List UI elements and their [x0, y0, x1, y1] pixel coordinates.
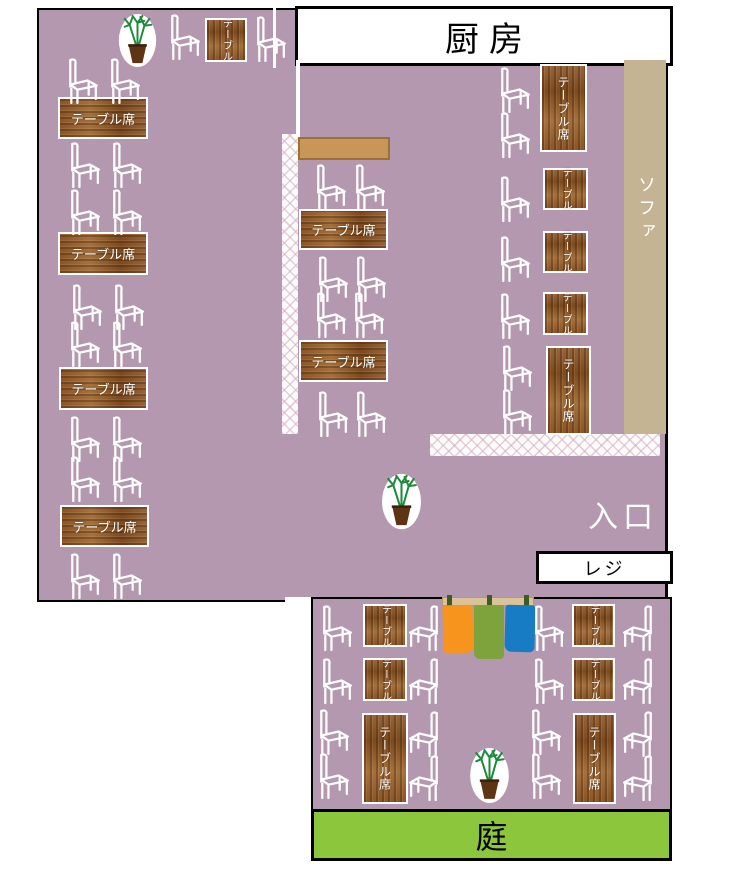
sofa-bench — [624, 60, 666, 434]
table-small: テーブル — [205, 18, 247, 62]
potted-plant-icon — [469, 747, 510, 804]
table-label: テーブル — [219, 18, 234, 62]
chair-icon — [525, 708, 562, 755]
chair-icon — [622, 710, 659, 757]
table-label: テーブル席 — [560, 358, 577, 423]
table-label: テーブル — [558, 167, 573, 211]
table-label: テーブル — [558, 230, 573, 274]
table-small: テーブル — [543, 168, 588, 210]
chair-icon — [622, 754, 659, 801]
kitchen-label: 厨房 — [435, 12, 533, 61]
lattice-partition-vertical — [282, 134, 298, 434]
table-seat: テーブル席 — [546, 346, 591, 435]
table-small: テーブル — [363, 604, 407, 647]
table-seat: テーブル席 — [540, 64, 587, 152]
chair-icon — [106, 552, 143, 599]
table-seat: テーブル席 — [60, 505, 149, 547]
chair-icon — [64, 141, 101, 188]
chair-icon — [106, 320, 143, 367]
chair-icon — [496, 344, 533, 391]
noren-curtain-green — [474, 605, 504, 659]
wall-divider-mid — [296, 60, 300, 138]
chair-icon — [622, 657, 659, 704]
table-label: テーブル席 — [71, 109, 135, 128]
garden-label: 庭 — [475, 812, 507, 858]
register-box: レジ — [536, 551, 673, 584]
table-label: テーブル席 — [377, 726, 394, 791]
register-label: レジ — [584, 555, 626, 581]
potted-plant-icon — [381, 471, 422, 532]
chair-icon — [528, 604, 565, 651]
table-small: テーブル — [363, 658, 407, 701]
chair-icon — [106, 455, 143, 502]
chair-icon — [494, 235, 531, 282]
chair-icon — [408, 754, 445, 801]
chair-icon — [350, 390, 387, 437]
table-seat: テーブル席 — [362, 713, 408, 804]
table-label: テーブル — [558, 292, 573, 336]
chair-icon — [106, 141, 143, 188]
chair-icon — [349, 163, 386, 210]
sofa-label: ソファ — [633, 175, 659, 244]
table-label: テーブル — [586, 604, 601, 648]
table-label: テーブル席 — [311, 220, 375, 239]
chair-icon — [164, 13, 201, 60]
chair-icon — [312, 390, 349, 437]
chair-icon — [64, 320, 101, 367]
chair-icon — [494, 292, 531, 339]
chair-icon — [494, 66, 531, 113]
chair-icon — [62, 57, 99, 104]
chair-icon — [494, 111, 531, 158]
table-small: テーブル — [543, 292, 588, 335]
table-seat: テーブル席 — [299, 340, 388, 382]
table-seat: テーブル席 — [299, 209, 388, 250]
chair-icon — [106, 188, 143, 235]
chair-icon — [310, 291, 347, 338]
chair-icon — [408, 604, 445, 651]
chair-icon — [313, 752, 350, 799]
table-label: テーブル席 — [72, 517, 136, 536]
table-label: テーブル — [378, 658, 393, 702]
chair-icon — [313, 708, 350, 755]
chair-icon — [64, 455, 101, 502]
chair-icon — [316, 657, 353, 704]
chair-icon — [316, 604, 353, 651]
table-label: テーブル席 — [71, 379, 135, 398]
table-seat: テーブル席 — [59, 367, 148, 410]
chair-icon — [310, 163, 347, 210]
table-small: テーブル — [572, 604, 615, 647]
entrance-label: 入口 — [588, 492, 658, 536]
chair-icon — [348, 291, 385, 338]
chair-icon — [494, 175, 531, 222]
chair-icon — [622, 604, 659, 651]
chair-icon — [250, 15, 287, 62]
table-label: テーブル — [378, 604, 393, 648]
table-label: テーブル席 — [311, 352, 375, 371]
kitchen-area: 厨房 — [295, 6, 673, 66]
chair-icon — [528, 657, 565, 704]
table-seat: テーブル席 — [58, 232, 148, 275]
table-small: テーブル — [543, 231, 588, 273]
table-label: テーブル — [586, 658, 601, 702]
chair-icon — [408, 710, 445, 757]
chair-icon — [64, 188, 101, 235]
chair-icon — [496, 388, 533, 435]
noren-curtain-orange — [442, 605, 473, 654]
service-counter — [298, 137, 390, 160]
table-label: テーブル席 — [586, 726, 603, 791]
table-label: テーブル席 — [71, 244, 135, 263]
garden-area: 庭 — [311, 809, 672, 861]
chair-icon — [408, 657, 445, 704]
lattice-partition-horizontal — [430, 434, 660, 456]
chair-icon — [525, 752, 562, 799]
chair-icon — [104, 57, 141, 104]
table-label: テーブル席 — [555, 76, 572, 141]
table-seat: テーブル席 — [573, 713, 616, 804]
table-small: テーブル — [572, 658, 615, 701]
chair-icon — [64, 552, 101, 599]
